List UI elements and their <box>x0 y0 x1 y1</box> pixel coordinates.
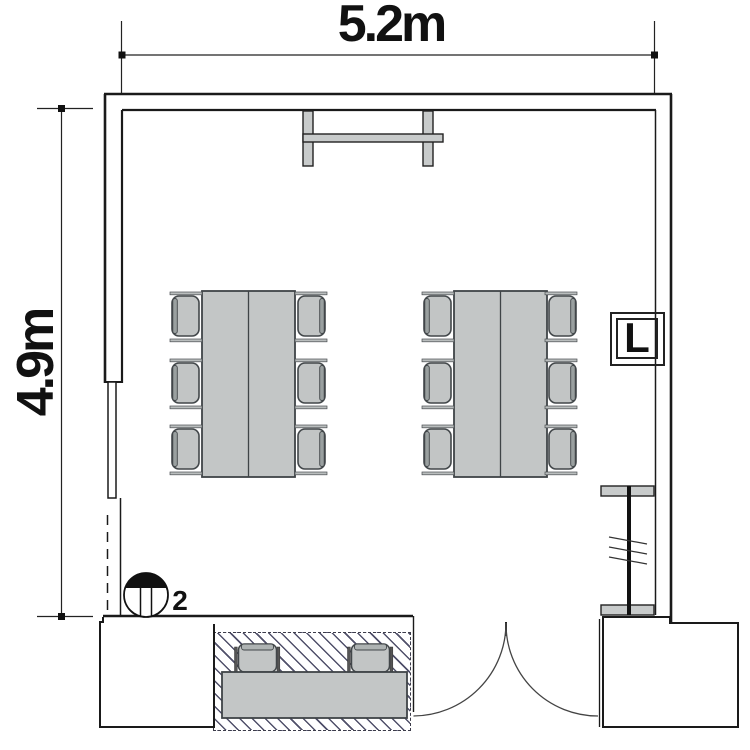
wall-box-letter: L <box>607 315 667 361</box>
chair <box>295 425 327 475</box>
round-symbol <box>124 573 168 617</box>
chair <box>545 425 577 475</box>
chair <box>170 359 202 409</box>
counter <box>222 672 407 718</box>
chair <box>295 359 327 409</box>
wall-mounted-screen <box>303 111 443 166</box>
dimension-height-label: 4.9m <box>9 278 63 448</box>
counter-chair <box>348 644 393 672</box>
floor-plan-drawing <box>0 0 750 750</box>
entrance-double-door <box>414 622 599 716</box>
exterior-blocks <box>100 617 738 727</box>
left-door-opening <box>108 498 121 615</box>
chair <box>545 359 577 409</box>
wall-cabinet <box>601 486 654 615</box>
chair <box>422 292 454 342</box>
chair <box>170 425 202 475</box>
chair <box>422 359 454 409</box>
chair <box>545 292 577 342</box>
chair <box>422 425 454 475</box>
counter-chair <box>235 644 280 672</box>
window-left <box>108 382 116 498</box>
chair <box>295 292 327 342</box>
round-symbol-number: 2 <box>167 587 193 615</box>
table <box>454 291 547 477</box>
table <box>202 291 295 477</box>
chair <box>170 292 202 342</box>
floor-plan: 5.2m 4.9m L 2 <box>0 0 750 750</box>
dimension-width-label: 5.2m <box>316 0 466 52</box>
